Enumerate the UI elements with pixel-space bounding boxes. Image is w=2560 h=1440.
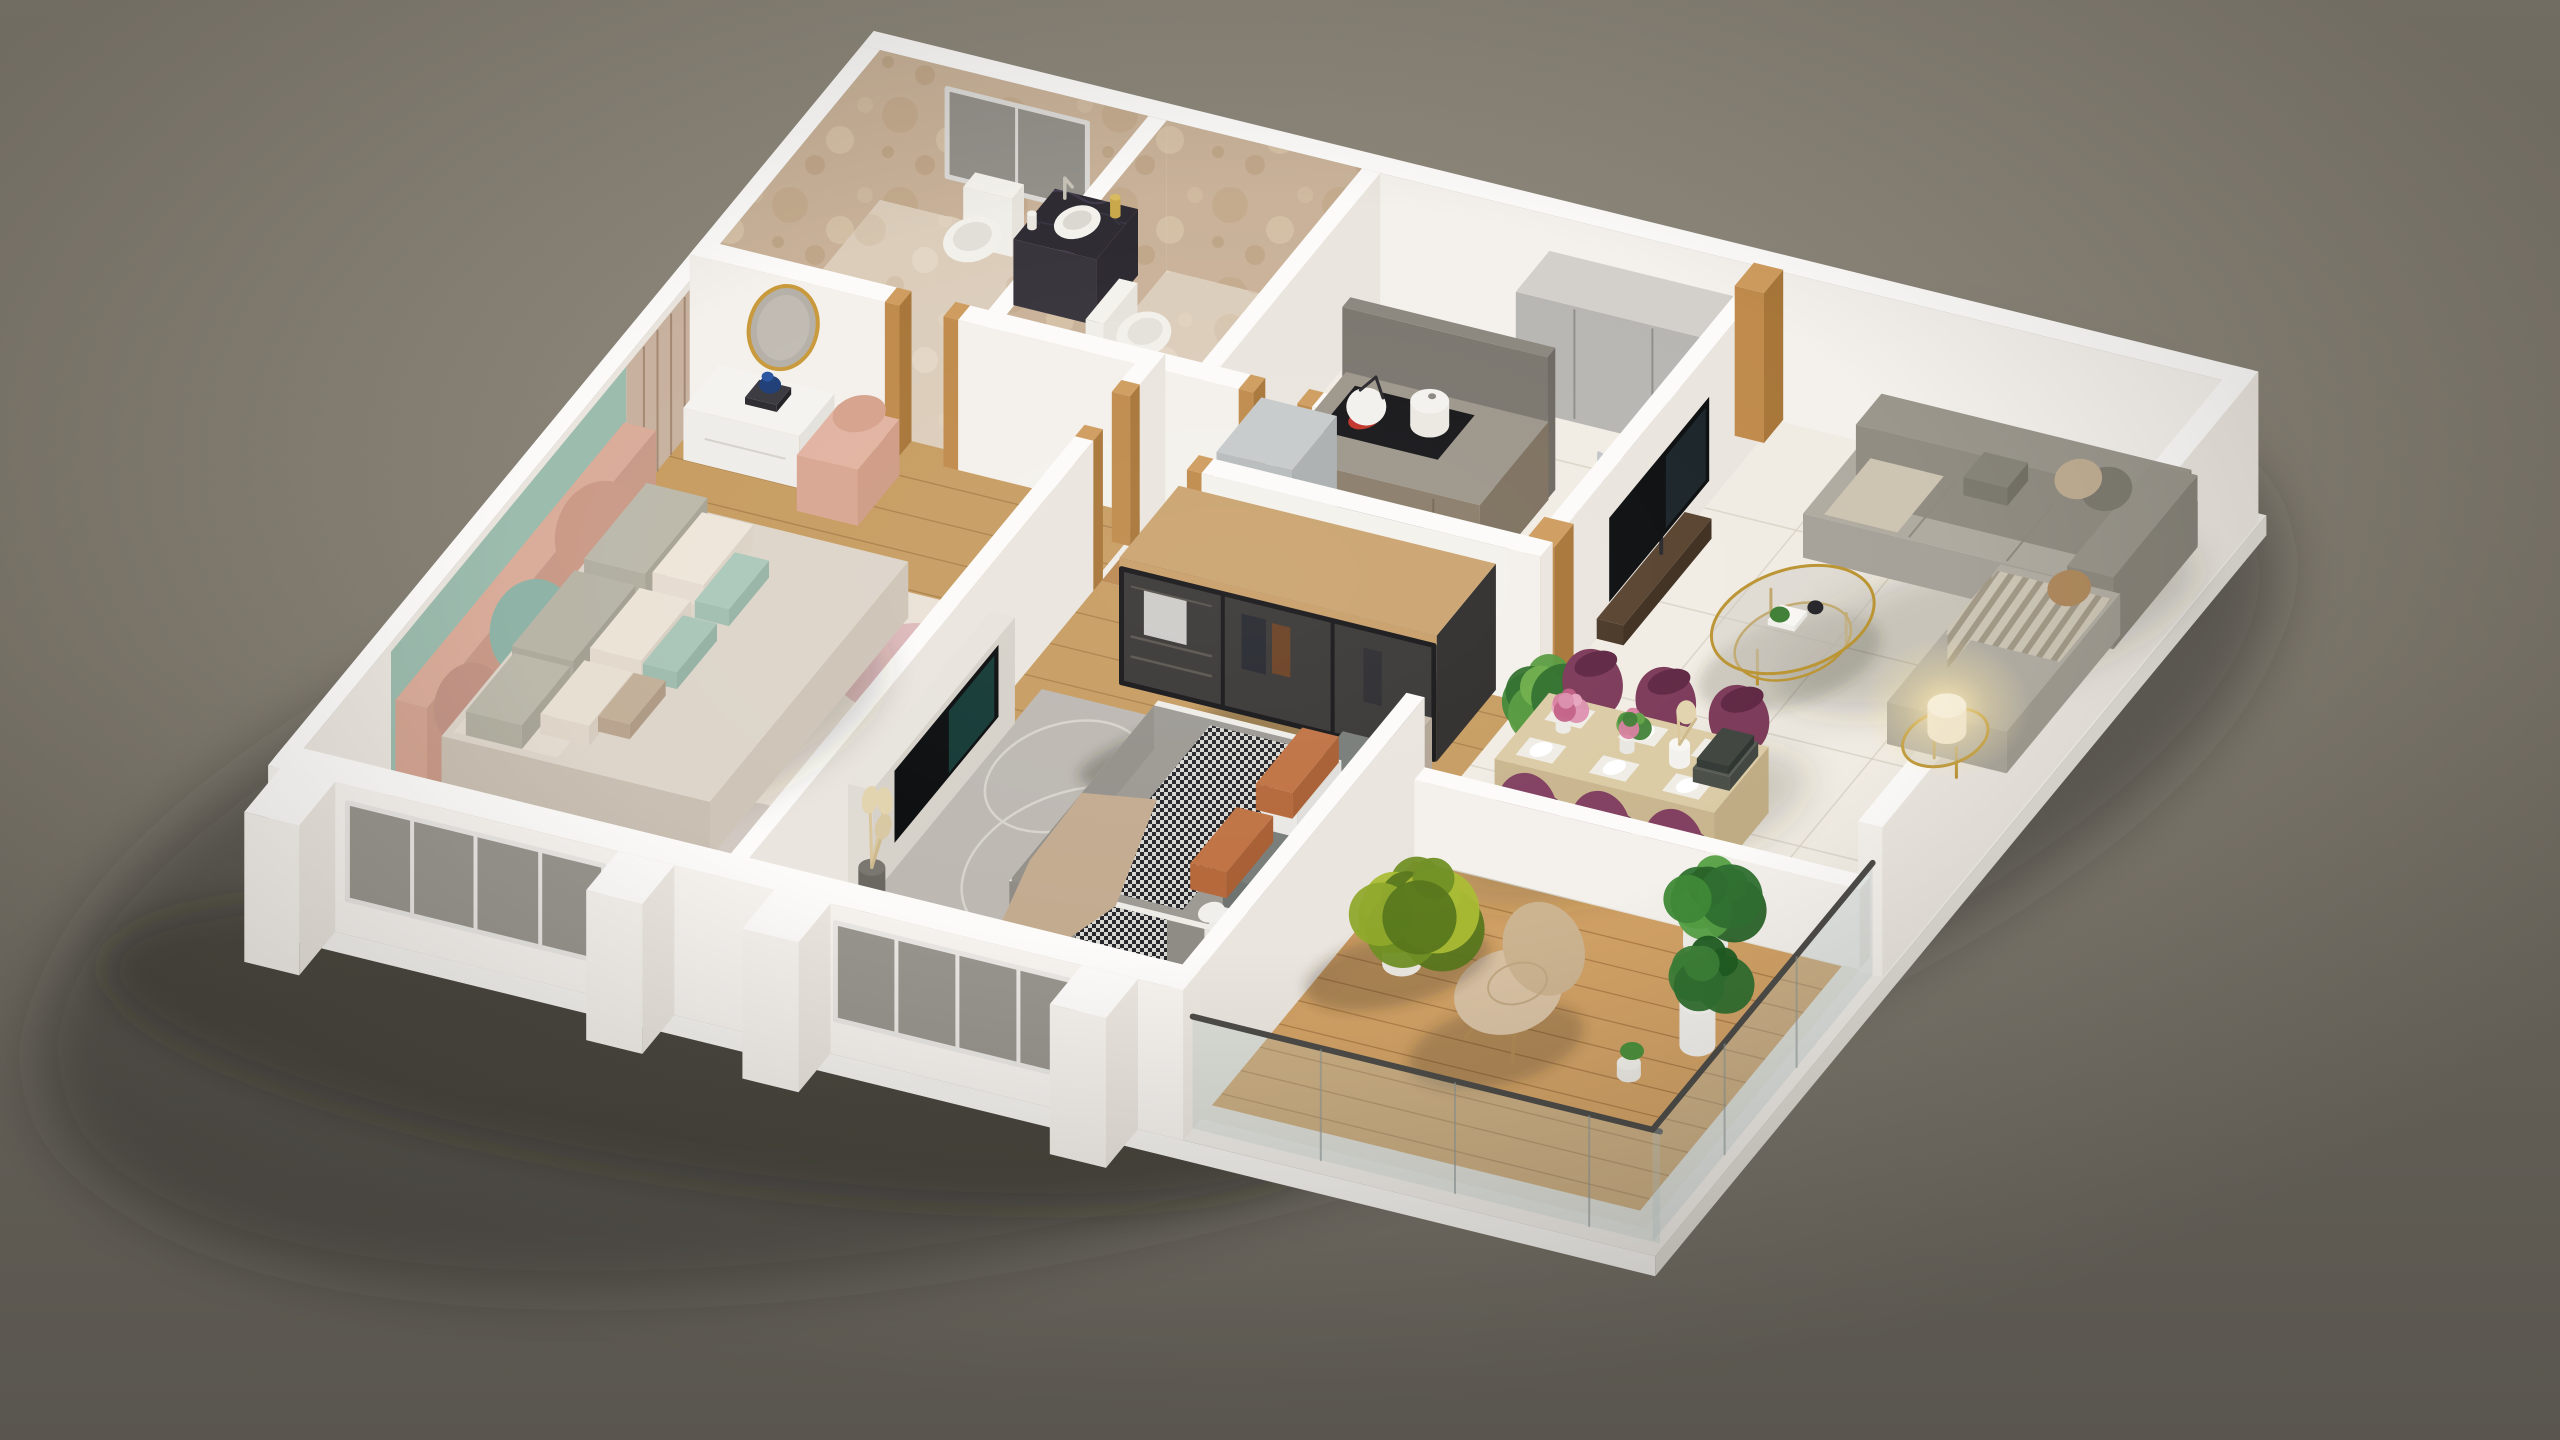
tv-wall-post-north xyxy=(1735,263,1784,443)
small-pot-plant xyxy=(1620,1042,1644,1060)
coffee-table-plant xyxy=(1770,607,1790,623)
bath1-bottle-gold xyxy=(1110,194,1121,219)
wardrobe-clothes-brown xyxy=(1272,623,1290,678)
floorplan-render xyxy=(0,0,2560,1440)
bath1-bottle-white xyxy=(1027,210,1037,230)
pampas-stem-1 xyxy=(870,804,872,868)
facade-stub-2 xyxy=(586,851,674,1054)
master-door-jamb-north xyxy=(1112,380,1140,546)
lamp-shade xyxy=(1927,693,1966,744)
facade-stub-1 xyxy=(244,768,335,975)
dining-pampas-plume xyxy=(1676,700,1696,724)
wardrobe-clothes-black xyxy=(1364,648,1382,707)
facade-stub-4 xyxy=(1050,965,1138,1168)
coffee-decor-sphere xyxy=(1807,600,1823,614)
scene-background: 3D isometric cutaway floor plan render o… xyxy=(0,0,2560,1440)
wardrobe-clothes-dark xyxy=(1242,614,1266,675)
pot-lid-knob xyxy=(1428,393,1436,399)
facade-stub-3 xyxy=(742,890,830,1093)
vanity-coral-decor-2 xyxy=(762,372,774,382)
